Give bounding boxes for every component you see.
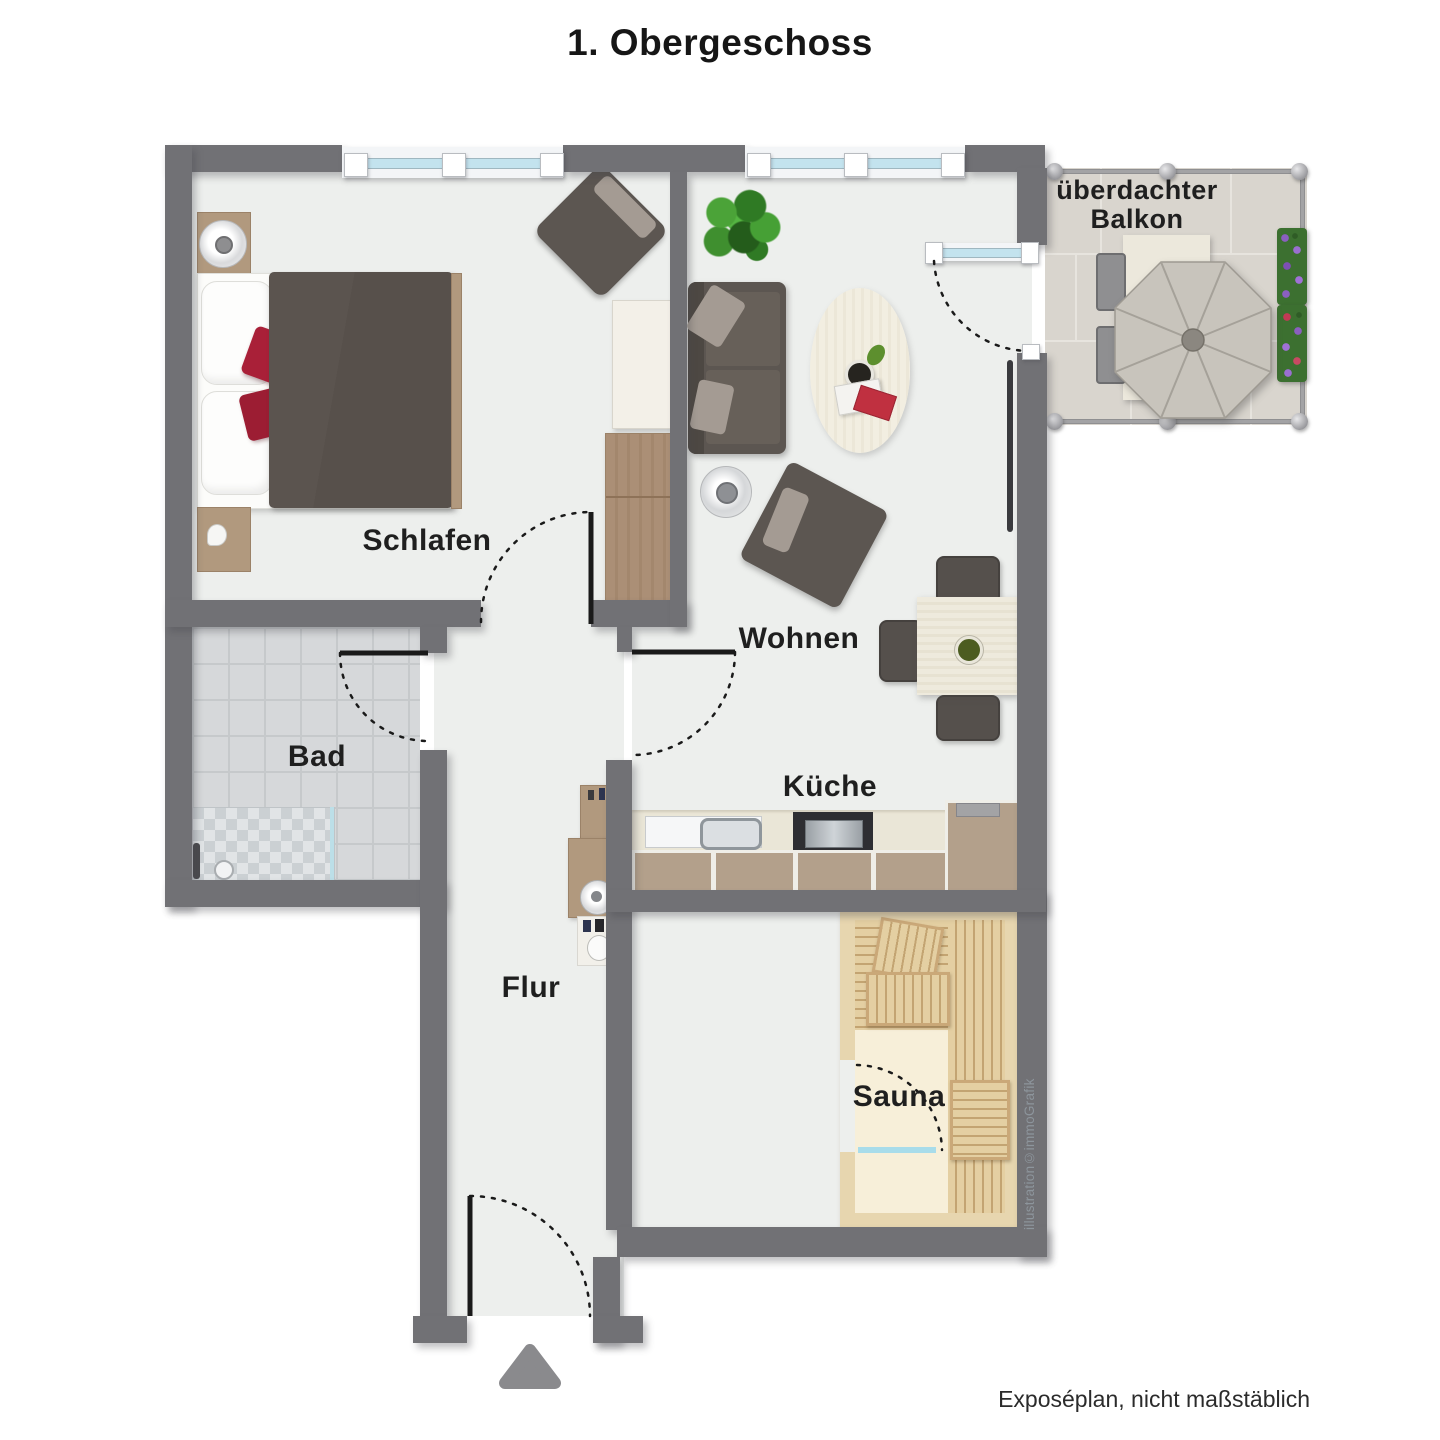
room-label-sauna: Sauna	[799, 1080, 999, 1114]
balkon-label-line1: überdachter	[1056, 175, 1218, 205]
wall-bath-right-lower	[420, 750, 447, 1316]
plant-icon	[698, 188, 782, 270]
tv-panel	[1007, 360, 1013, 532]
window-post	[747, 153, 771, 177]
balcony-chair	[1096, 253, 1126, 311]
railing-post-icon	[1046, 413, 1063, 430]
balcony-door-leaf	[928, 243, 1032, 261]
wall-wing-bottom	[617, 1227, 1047, 1257]
room-label-kueche: Küche	[730, 770, 930, 804]
entrance-arrow-icon	[505, 1350, 555, 1383]
bed-footboard	[451, 273, 462, 509]
kitchen-sink-basin	[700, 818, 762, 850]
nightstand-decor	[207, 524, 227, 546]
wall-bath-right-upper	[420, 627, 447, 653]
wall-entry-stub-left	[413, 1316, 467, 1343]
bed-duvet	[269, 272, 453, 508]
shower-drain-icon	[214, 860, 234, 880]
railing-post-icon	[1159, 413, 1176, 430]
room-label-flur: Flur	[431, 971, 631, 1005]
shower-fixture-icon	[193, 843, 200, 879]
flower-planter	[1277, 305, 1307, 382]
room-label-schlafen: Schlafen	[327, 524, 527, 558]
room-label-bad: Bad	[257, 740, 377, 774]
dining-chair	[936, 695, 1000, 741]
bedside-lamp-icon	[215, 236, 233, 254]
sideboard-decor	[599, 788, 605, 800]
window-post	[941, 153, 965, 177]
hall-lamp-icon	[591, 891, 602, 902]
wall-flur-stub	[617, 627, 632, 652]
illustration-credit: illustration©immoGrafik	[1022, 1058, 1042, 1230]
room-label-balkon: überdachter Balkon	[1037, 176, 1237, 234]
kitchen-stove	[793, 812, 873, 850]
balcony-chair	[1096, 326, 1126, 384]
wall-divider-bed-living	[670, 172, 687, 627]
balcony-door-post	[1021, 242, 1039, 264]
room-label-wohnen: Wohnen	[699, 622, 899, 656]
sofa	[688, 282, 786, 454]
wall-left	[165, 145, 192, 907]
window-post	[344, 153, 368, 177]
window-post	[540, 153, 564, 177]
kitchen-coffee-machine	[956, 803, 1000, 817]
balkon-label-line2: Balkon	[1090, 204, 1183, 234]
wall-bedroom-bottom-left	[165, 600, 481, 627]
wall-entry-stub-right	[593, 1316, 643, 1343]
footer-note: Exposéplan, nicht maßstäblich	[998, 1386, 1310, 1413]
flower-planter	[1277, 228, 1307, 305]
railing-post-icon	[1291, 163, 1308, 180]
floor-lamp-icon	[716, 482, 738, 504]
wall-right-upper	[1017, 168, 1047, 245]
balcony-door-post	[925, 242, 943, 264]
balcony-door-post	[1022, 344, 1040, 360]
wall-bath-bottom	[165, 880, 445, 907]
sauna-headrest	[866, 972, 950, 1026]
bedroom-shelf	[612, 300, 672, 429]
wall-kitchen-bottom	[606, 890, 1046, 912]
sauna-bench-right	[948, 920, 1005, 1213]
page-title: 1. Obergeschoss	[420, 22, 1020, 64]
railing-post-icon	[1291, 413, 1308, 430]
shower-glass-panel	[330, 807, 334, 880]
wardrobe	[605, 433, 675, 609]
window-post	[844, 153, 868, 177]
table-plant-pot	[955, 636, 983, 664]
window-post	[442, 153, 466, 177]
floor-plan-canvas: 1. Obergeschoss	[0, 0, 1440, 1440]
balcony-table	[1123, 235, 1210, 400]
wall-top-mid	[563, 145, 745, 172]
sideboard-decor	[588, 790, 594, 800]
